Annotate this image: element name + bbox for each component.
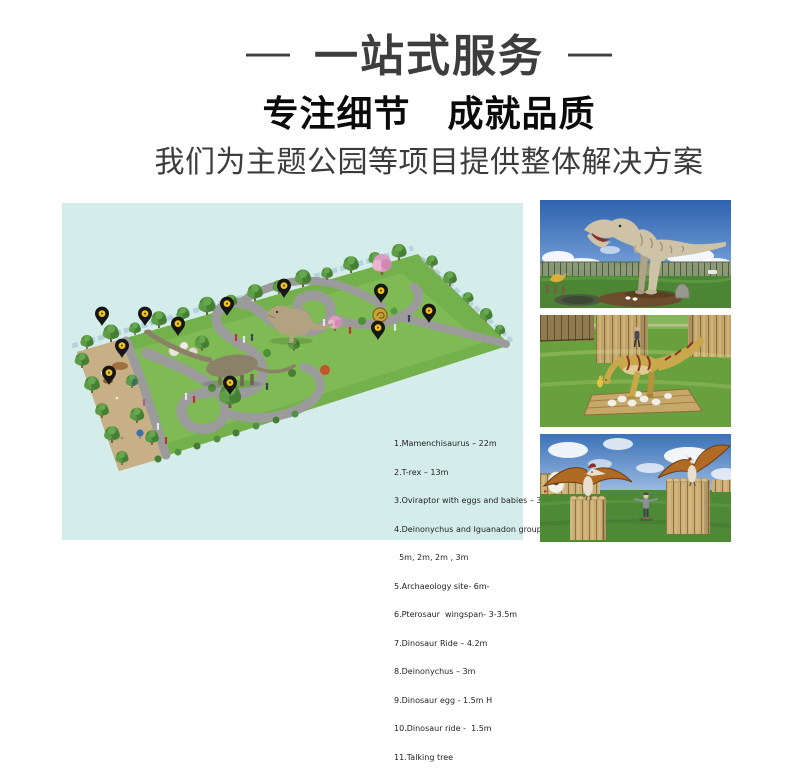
- photo-trex: [540, 200, 731, 308]
- oviraptor-photo-illustration: [540, 315, 731, 427]
- legend-item: 5m, 2m, 2m , 3m: [394, 553, 549, 563]
- header: — 一站式服务 — 专注细节 成就品质 我们为主题公园等项目提供整体解决方案: [58, 0, 800, 190]
- background-fence-right: [712, 480, 731, 492]
- page-root: { "header": { "banner": { "dash_left": "…: [0, 0, 800, 626]
- legend-item: 3.Oviraptor with eggs and babies – 3m: [394, 496, 549, 506]
- park-map-figure: 1.Mamenchisaurus – 22m 2.T-rex – 13m 3.O…: [62, 203, 523, 540]
- timber-pillar-right: [666, 478, 710, 534]
- banner-title: 一站式服务: [314, 20, 544, 84]
- legend-item: 9.Dinosaur egg - 1.5m H: [394, 696, 549, 706]
- banner-row: — 一站式服务 —: [58, 26, 800, 78]
- legend-item: 4.Deinonychus and Iguanadon group: [394, 525, 549, 535]
- photo-oviraptor-nest: [540, 315, 731, 427]
- title-dash-right: —: [568, 27, 612, 77]
- legend-item: 6.Pterosaur wingspan- 3-3.5m: [394, 610, 549, 620]
- timber-pillar-left: [570, 496, 606, 540]
- photo-column: [540, 200, 731, 549]
- legend-item: 10.Dinosaur ride - 1.5m: [394, 724, 549, 734]
- legend-item: 7.Dinosaur Ride – 4.2m: [394, 639, 549, 649]
- wood-fence: [540, 315, 594, 341]
- trex-photo-illustration: [540, 200, 731, 308]
- title-dash-left: —: [246, 27, 290, 77]
- legend-item: 2.T-rex – 13m: [394, 468, 549, 478]
- legend-item: 11.Talking tree: [394, 753, 549, 763]
- legend-item: 8.Deinonychus – 3m: [394, 667, 549, 677]
- dinosaur-ride: [373, 308, 387, 322]
- legend-item: 1.Mamenchisaurus – 22m: [394, 439, 549, 449]
- photo-pterosaurs: [540, 434, 731, 542]
- pterosaur-photo-illustration: [540, 434, 731, 542]
- subtitle: 我们为主题公园等项目提供整体解决方案: [58, 137, 800, 181]
- legend-panel: 1.Mamenchisaurus – 22m 2.T-rex – 13m 3.O…: [394, 420, 549, 781]
- car: [708, 270, 717, 274]
- legend-item: 5.Archaeology site- 6m-: [394, 582, 549, 592]
- headline: 专注细节 成就品质: [58, 85, 800, 137]
- red-bush: [320, 365, 330, 375]
